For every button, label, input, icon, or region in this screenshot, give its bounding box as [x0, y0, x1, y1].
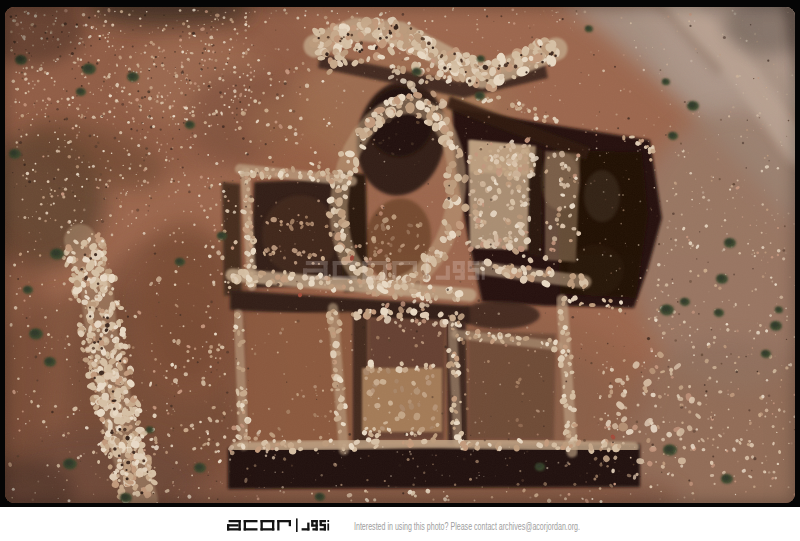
svg-text:Interested in using this photo: Interested in using this photo? Please c…: [354, 519, 580, 533]
